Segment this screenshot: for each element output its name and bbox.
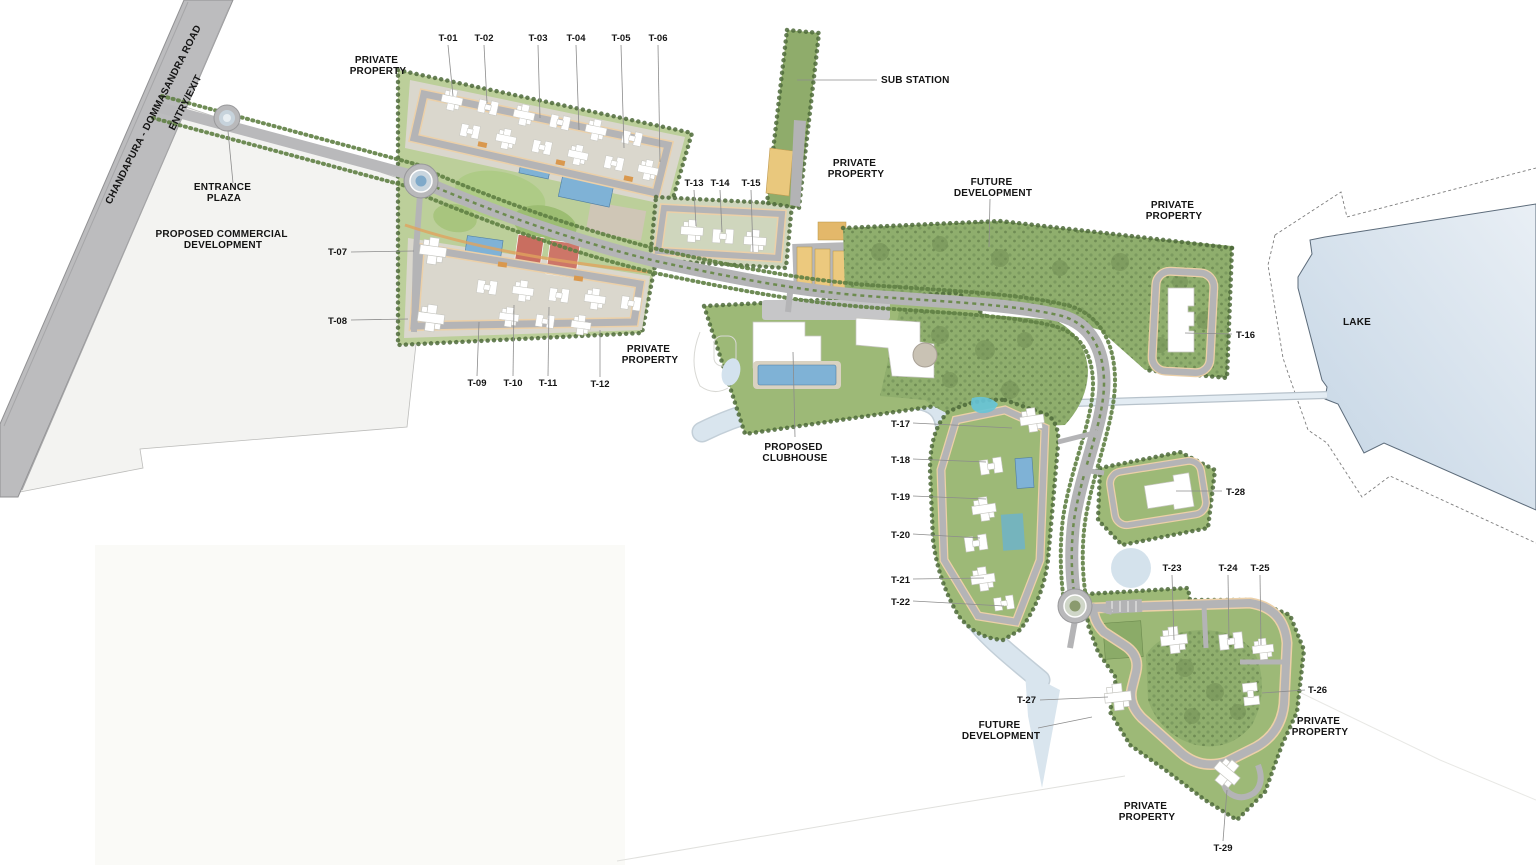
label-line: DEVELOPMENT	[184, 240, 262, 251]
label-t20: T-20	[891, 530, 910, 541]
label-private-property-t16: PRIVATE PROPERTY	[1146, 200, 1203, 222]
label-t21: T-21	[891, 575, 911, 586]
label-t12: T-12	[590, 379, 609, 390]
label-t27: T-27	[1017, 695, 1036, 706]
label-t09: T-09	[467, 378, 486, 389]
label-line: PROPERTY	[1119, 812, 1176, 823]
label-t22: T-22	[891, 597, 910, 608]
label-t11: T-11	[539, 378, 558, 389]
court-block	[818, 222, 846, 240]
lake	[1268, 168, 1536, 543]
label-t24: T-24	[1218, 563, 1238, 574]
label-line: PROPERTY	[1292, 727, 1349, 738]
label-line: PRIVATE	[1297, 716, 1340, 727]
label-line: PROPERTY	[350, 66, 407, 77]
label-line: PROPOSED COMMERCIAL	[156, 229, 288, 240]
label-line: PROPERTY	[828, 169, 885, 180]
label-t17: T-17	[891, 419, 910, 430]
label-lake: LAKE	[1343, 317, 1371, 328]
site-plan-map: CHANDAPURA - DOMMASANDRA ROAD ENTRY/EXIT…	[0, 0, 1536, 865]
label-t14: T-14	[710, 178, 730, 189]
label-line: FUTURE	[971, 177, 1013, 188]
label-line: PRIVATE	[1124, 801, 1167, 812]
label-t01: T-01	[438, 33, 458, 44]
swimming-pool	[1015, 457, 1034, 488]
label-t16: T-16	[1236, 330, 1255, 341]
clubhouse-pool	[758, 365, 836, 385]
label-t02: T-02	[474, 33, 493, 44]
label-line: PRIVATE	[1151, 200, 1194, 211]
t16-building	[1168, 288, 1194, 352]
label-line: PLAZA	[207, 193, 241, 204]
pond	[1111, 548, 1151, 588]
label-proposed-clubhouse: PROPOSED CLUBHOUSE	[762, 442, 827, 464]
label-line: PROPOSED	[764, 442, 822, 453]
site-master-plan: CHANDAPURA - DOMMASANDRA ROAD ENTRY/EXIT…	[0, 0, 1536, 865]
label-future-development-south: FUTURE DEVELOPMENT	[962, 720, 1040, 742]
label-t18: T-18	[891, 455, 910, 466]
label-t04: T-04	[566, 33, 586, 44]
label-t28: T-28	[1226, 487, 1245, 498]
label-private-property-se-right: PRIVATE PROPERTY	[1292, 716, 1349, 738]
label-line: PROPERTY	[622, 355, 679, 366]
label-private-property-se-bottom: PRIVATE PROPERTY	[1119, 801, 1176, 823]
label-future-development-north: FUTURE DEVELOPMENT	[954, 177, 1032, 199]
label-line: FUTURE	[979, 720, 1021, 731]
label-t15: T-15	[741, 178, 761, 189]
label-private-property-nw: PRIVATE PROPERTY	[350, 55, 407, 77]
label-line: PRIVATE	[355, 55, 398, 66]
spiral-court	[913, 343, 937, 367]
label-line: PRIVATE	[627, 344, 670, 355]
label-line: PROPERTY	[1146, 211, 1203, 222]
label-t25: T-25	[1250, 563, 1270, 574]
label-t26: T-26	[1308, 685, 1327, 696]
label-t07: T-07	[328, 247, 347, 258]
west-parcel	[398, 70, 692, 345]
substation-parking	[766, 148, 793, 196]
label-t23: T-23	[1162, 563, 1181, 574]
label-sub-station: SUB STATION	[881, 75, 950, 86]
label-t29: T-29	[1213, 843, 1232, 854]
entrance-roundabout	[214, 105, 240, 131]
west-roundabout	[404, 164, 438, 198]
label-private-property-mid: PRIVATE PROPERTY	[622, 344, 679, 366]
label-t05: T-05	[611, 33, 631, 44]
label-line: DEVELOPMENT	[954, 188, 1032, 199]
label-line: PRIVATE	[833, 158, 876, 169]
label-private-property-substation: PRIVATE PROPERTY	[828, 158, 885, 180]
label-t10: T-10	[503, 378, 522, 389]
label-t19: T-19	[891, 492, 910, 503]
label-t03: T-03	[528, 33, 547, 44]
faint-terrain	[95, 545, 1536, 865]
label-t08: T-08	[328, 316, 347, 327]
label-line: ENTRANCE	[194, 182, 251, 193]
label-t06: T-06	[648, 33, 667, 44]
label-line: CLUBHOUSE	[762, 453, 827, 464]
label-t13: T-13	[684, 178, 703, 189]
label-line: DEVELOPMENT	[962, 731, 1040, 742]
t28-parcel	[1098, 452, 1215, 545]
se-roundabout	[1058, 589, 1092, 623]
sub-station-strip	[766, 30, 819, 208]
sports-court	[1001, 513, 1025, 550]
